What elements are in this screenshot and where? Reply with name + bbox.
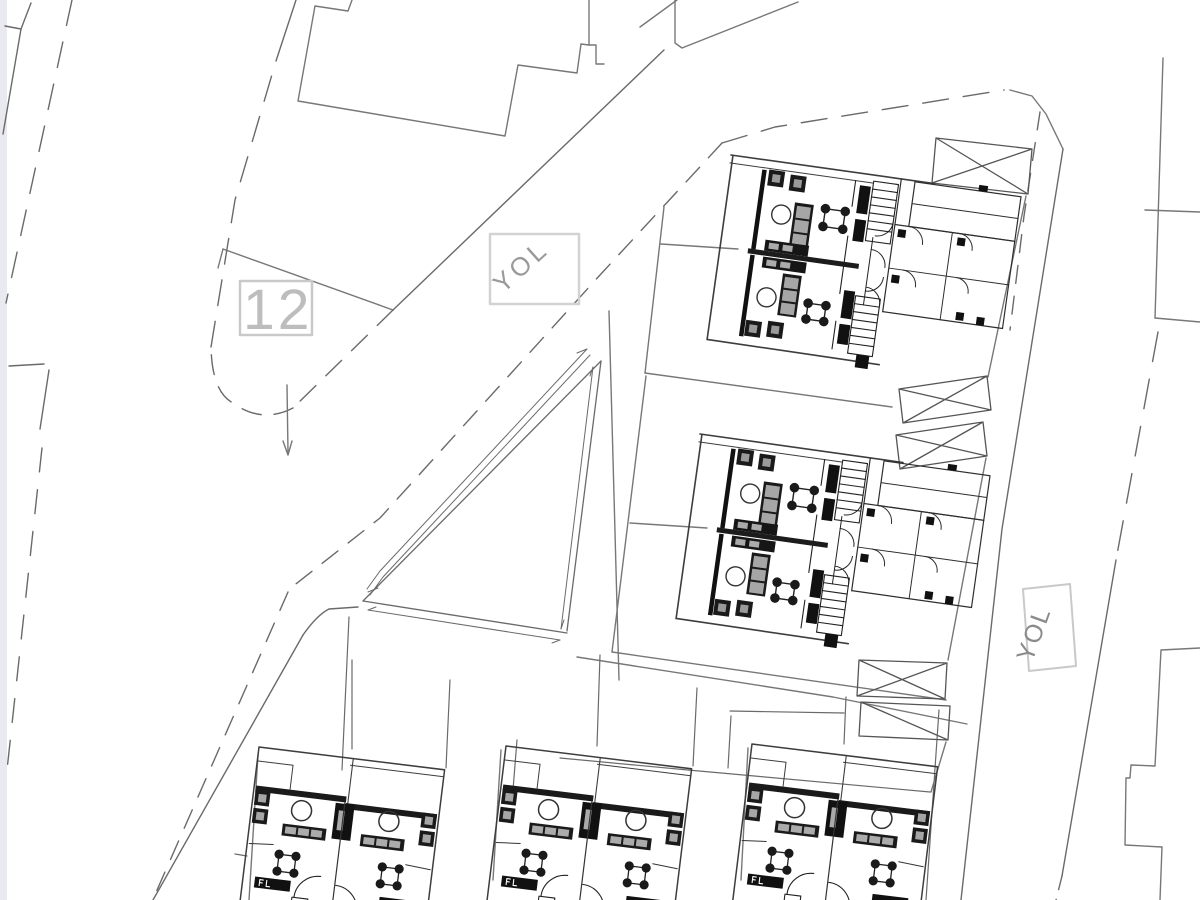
svg-text:12: 12 — [243, 278, 312, 342]
